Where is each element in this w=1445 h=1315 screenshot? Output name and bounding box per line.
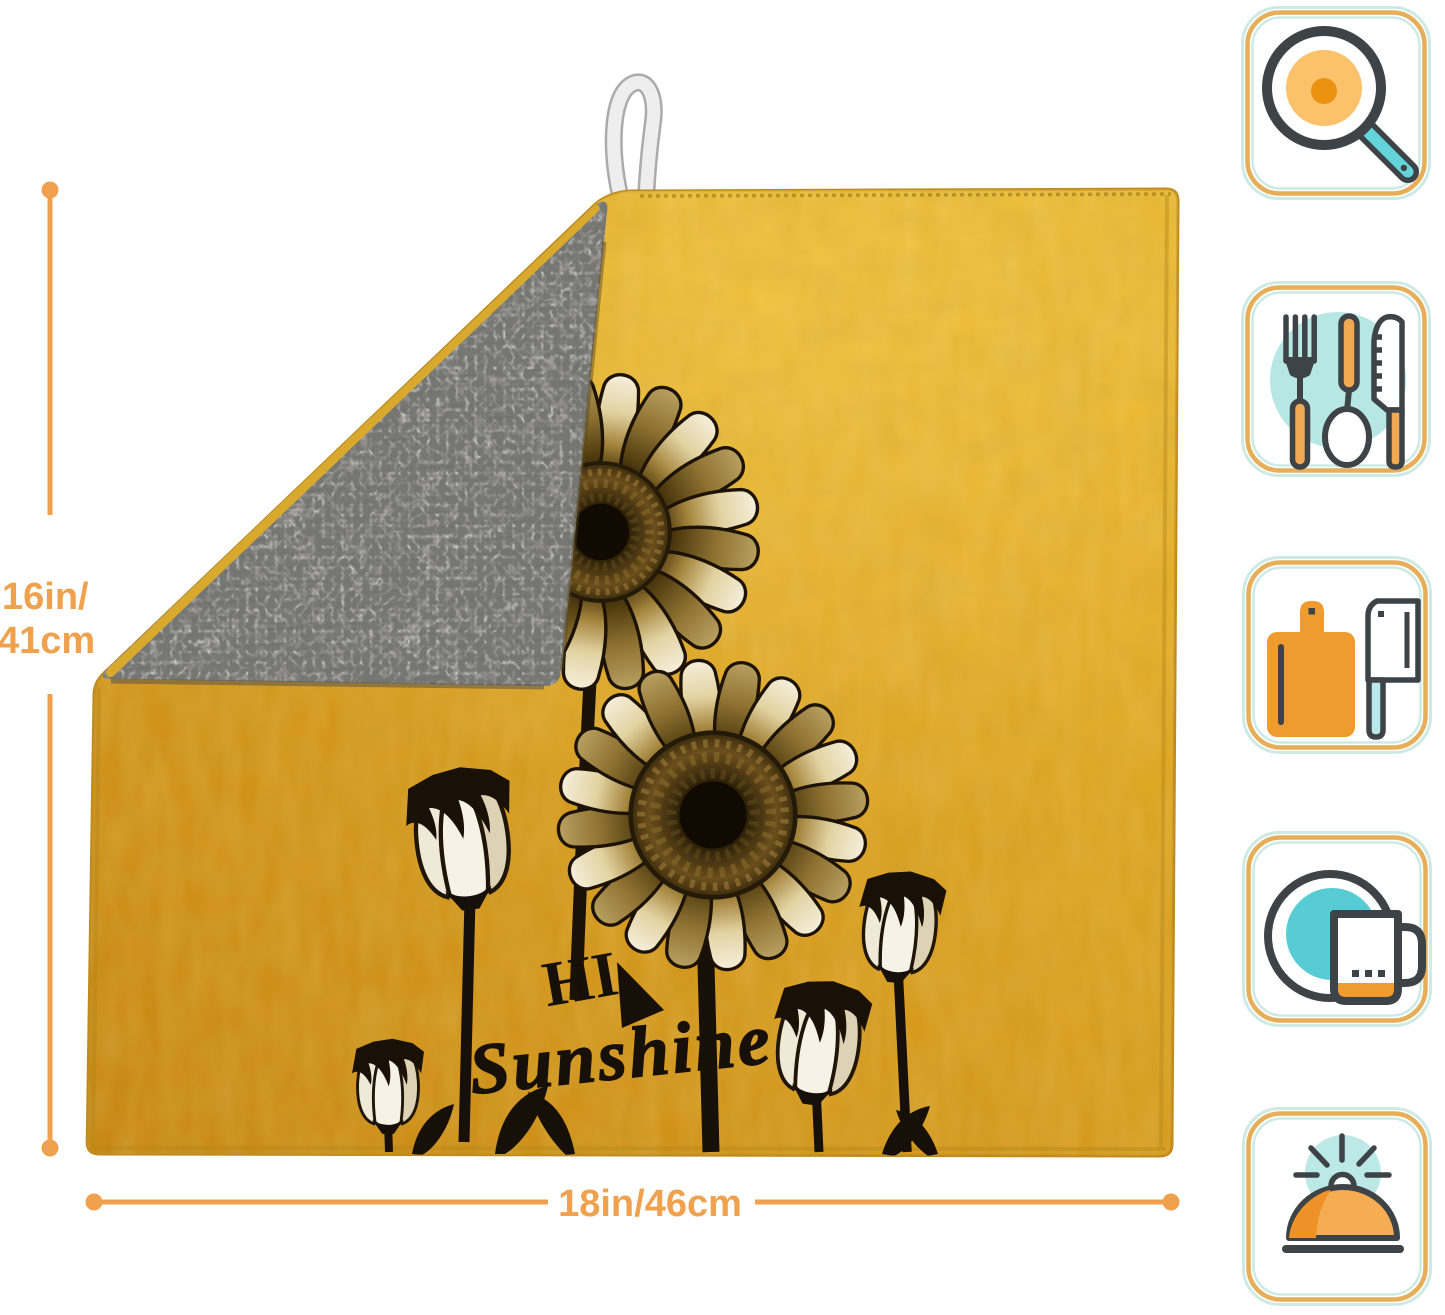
svg-text:18in/46cm: 18in/46cm [558,1183,742,1225]
svg-text:16in/: 16in/ [2,576,89,618]
svg-text:HI: HI [537,937,623,1020]
svg-text:41cm: 41cm [0,620,95,662]
